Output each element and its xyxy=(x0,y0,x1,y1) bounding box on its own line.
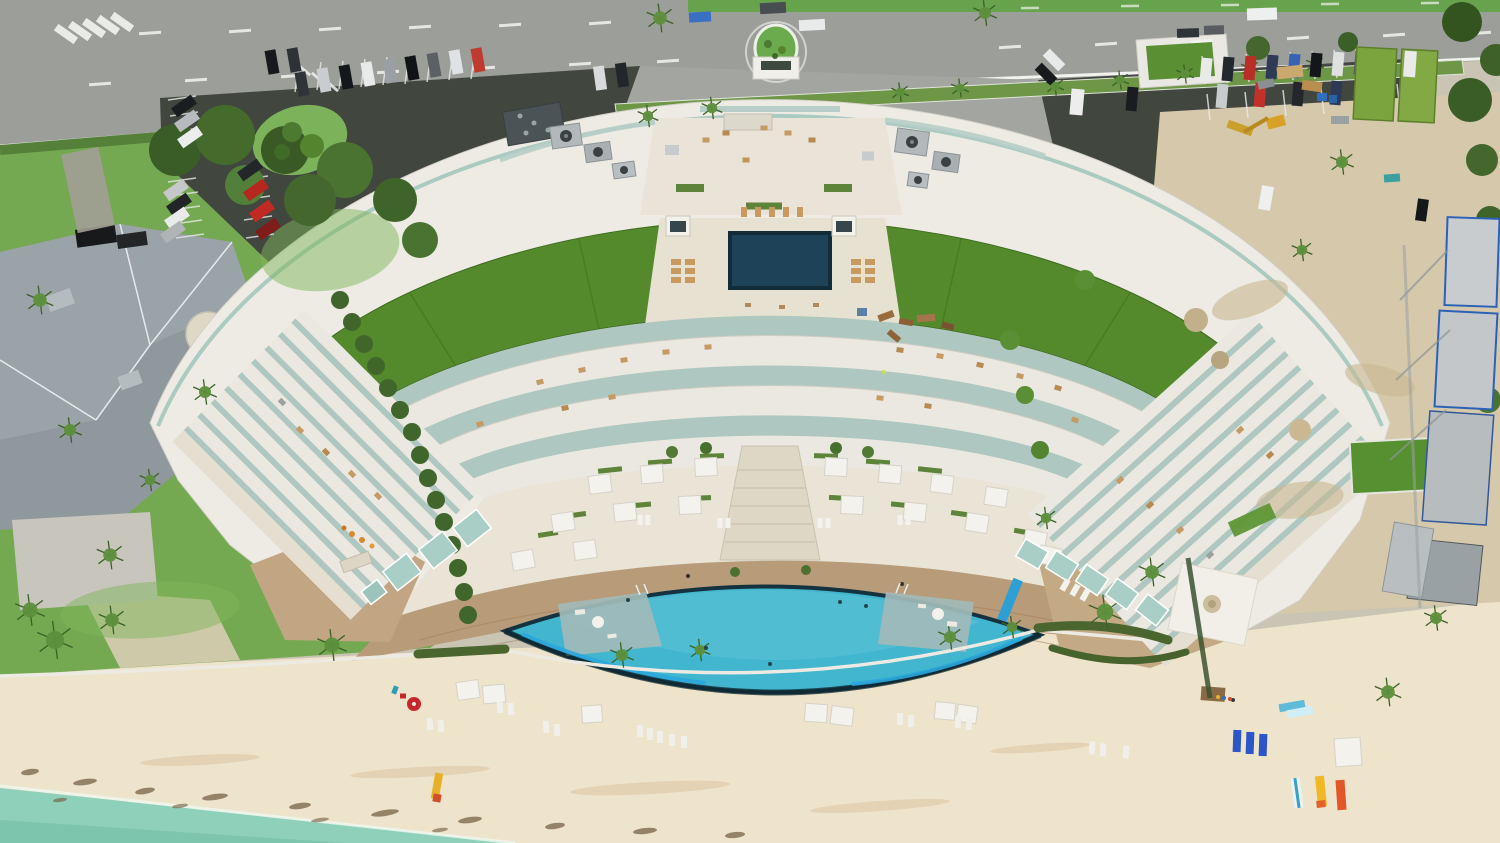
hedge xyxy=(676,184,704,192)
beach-lounger xyxy=(908,715,914,727)
pavilion-shade xyxy=(836,221,852,232)
fan xyxy=(910,140,914,144)
rooftop-lounger xyxy=(745,303,751,307)
scaffold-slab xyxy=(1422,411,1494,525)
tree xyxy=(830,442,842,454)
tree xyxy=(700,442,712,454)
fan xyxy=(564,134,568,138)
swimmer xyxy=(704,646,708,650)
lumber xyxy=(857,308,867,316)
vehicle xyxy=(689,11,711,22)
vent-dot xyxy=(546,128,551,133)
island-shrub xyxy=(772,53,778,59)
tree xyxy=(459,606,477,624)
lane-dash xyxy=(1221,4,1239,7)
lounger xyxy=(818,518,823,528)
parked-car xyxy=(1199,58,1212,83)
beach-lounger xyxy=(554,724,561,736)
porta-unit xyxy=(1329,95,1337,103)
rooftop-lounger xyxy=(797,207,803,217)
parked-car xyxy=(1331,52,1344,77)
tree xyxy=(1442,2,1482,42)
beach-lounger xyxy=(637,725,643,737)
beach-hedge xyxy=(418,649,505,654)
cabana xyxy=(878,464,901,484)
beach-lounger xyxy=(669,734,675,746)
rooftop-lounger xyxy=(779,305,785,309)
kayak xyxy=(1316,800,1326,808)
vehicle xyxy=(1204,25,1224,35)
shelf-lounger xyxy=(918,604,926,609)
tree xyxy=(355,335,373,353)
beach-lounger xyxy=(681,736,687,748)
rooftop-lounger xyxy=(671,277,681,283)
tree xyxy=(1075,270,1095,290)
tree xyxy=(1184,308,1208,332)
bar-item xyxy=(1228,697,1232,701)
beach-lounger xyxy=(657,731,663,743)
shelf-lounger xyxy=(947,621,957,627)
lounger xyxy=(638,515,643,525)
tree xyxy=(300,134,324,158)
parked-car xyxy=(1309,53,1322,78)
aerial-photo xyxy=(0,0,1500,843)
lounger xyxy=(646,515,651,525)
parked-car xyxy=(1215,84,1228,109)
cabana xyxy=(934,702,955,721)
tree xyxy=(1211,351,1229,369)
island-shrub xyxy=(778,46,786,54)
balcony-furniture xyxy=(743,158,750,163)
kayak xyxy=(432,793,441,802)
parked-car xyxy=(1221,57,1234,82)
lounger xyxy=(898,515,903,525)
vehicle xyxy=(1247,7,1277,20)
cabana xyxy=(511,549,536,571)
tree xyxy=(343,313,361,331)
balcony-furniture xyxy=(809,138,816,143)
bar-item xyxy=(1222,696,1226,700)
cabana xyxy=(930,474,954,495)
green-container xyxy=(1398,49,1438,123)
rooftop-lounger xyxy=(851,259,861,265)
parked-car xyxy=(1265,55,1278,80)
cabana xyxy=(456,680,480,701)
tree xyxy=(1031,441,1049,459)
cabana xyxy=(984,486,1009,507)
tree xyxy=(1000,330,1020,350)
cabana xyxy=(573,540,597,561)
worker xyxy=(882,370,886,374)
tree xyxy=(1466,144,1498,176)
beach-lounger xyxy=(1100,743,1107,756)
tree xyxy=(666,446,678,458)
tree xyxy=(391,401,409,419)
fan xyxy=(620,166,628,174)
flowers xyxy=(349,531,355,537)
beach-lounger xyxy=(647,728,653,740)
rooftop-lounger xyxy=(865,268,875,274)
pool-umbrella xyxy=(932,608,944,620)
rooftop-lounger xyxy=(769,207,775,217)
fan xyxy=(941,157,951,167)
tree xyxy=(419,469,437,487)
blue-lounger xyxy=(1233,730,1242,752)
roof-unit xyxy=(665,145,679,155)
cabana xyxy=(695,457,718,476)
tree xyxy=(274,144,290,160)
cabana xyxy=(640,464,663,484)
beach-lounger xyxy=(543,721,550,733)
parked-car xyxy=(1069,88,1084,115)
tree xyxy=(1289,419,1311,441)
parked-car xyxy=(1125,87,1138,112)
rooftop-lounger xyxy=(685,259,695,265)
rooftop-lounger xyxy=(851,277,861,283)
cabana xyxy=(551,511,576,532)
lounger xyxy=(906,515,911,525)
porta-unit xyxy=(1317,93,1327,101)
cabana xyxy=(825,457,848,476)
lane-dash xyxy=(1121,5,1139,8)
vehicle xyxy=(1177,28,1199,38)
cabana xyxy=(804,703,827,722)
flowers xyxy=(370,544,375,549)
hedge xyxy=(824,184,852,192)
balcony-furniture xyxy=(896,347,904,353)
rooftop-lounger xyxy=(813,303,819,307)
vehicle xyxy=(799,19,826,31)
cabana xyxy=(581,705,602,723)
beach-lounger xyxy=(437,720,444,732)
rooftop-lounger xyxy=(685,277,695,283)
swimmer xyxy=(838,600,842,604)
vent-dot xyxy=(524,131,529,136)
beach-lounger xyxy=(508,703,515,715)
pool-shallow-shelf xyxy=(878,592,974,652)
rooftop-lounger xyxy=(671,268,681,274)
beach-lounger xyxy=(1122,745,1129,758)
balcony-furniture xyxy=(785,131,792,136)
tree xyxy=(411,446,429,464)
lounger xyxy=(826,518,831,528)
bar-item xyxy=(1216,695,1220,699)
tree xyxy=(435,513,453,531)
lane-dash xyxy=(1421,2,1439,5)
tree xyxy=(1016,386,1034,404)
shelf-lounger xyxy=(575,609,585,615)
tree xyxy=(379,379,397,397)
trailer xyxy=(1403,51,1417,78)
lounger xyxy=(718,518,723,528)
tree xyxy=(427,491,445,509)
balcony-furniture xyxy=(703,138,710,143)
rooftop-lounger xyxy=(783,207,789,217)
fan xyxy=(593,147,603,157)
beach-chair xyxy=(400,694,406,699)
roof-unit xyxy=(862,152,874,161)
cabana xyxy=(679,495,702,514)
tree xyxy=(284,174,336,226)
tree xyxy=(331,291,349,309)
lane-dash xyxy=(1321,3,1339,6)
beach-lounger xyxy=(966,718,973,730)
balcony-furniture xyxy=(662,349,669,355)
beach-lounger xyxy=(426,718,433,730)
rooftop-lounger xyxy=(851,268,861,274)
balcony-furniture xyxy=(723,131,730,136)
aerial-photo-stage xyxy=(0,0,1500,843)
tree xyxy=(449,559,467,577)
tree xyxy=(403,423,421,441)
island-shrub xyxy=(764,40,772,48)
cabana xyxy=(588,474,612,495)
tree xyxy=(1448,78,1492,122)
red-umbrella xyxy=(412,702,416,706)
entry-courtyard xyxy=(640,118,902,215)
material-stack xyxy=(1331,116,1349,124)
tree xyxy=(402,222,438,258)
tree xyxy=(862,446,874,458)
fan xyxy=(914,176,922,184)
porte-cochere-opening xyxy=(761,61,791,70)
vent-dot xyxy=(518,114,523,119)
rooftop-lounger xyxy=(685,268,695,274)
tree xyxy=(1338,32,1358,52)
tree xyxy=(730,567,740,577)
balcony-furniture xyxy=(876,395,884,401)
rooftop-pool xyxy=(730,233,830,288)
person xyxy=(686,574,690,578)
rooftop-lounger xyxy=(865,277,875,283)
beach-lounger xyxy=(897,713,903,725)
vent-dot xyxy=(532,121,537,126)
swimmer xyxy=(768,662,772,666)
cabana xyxy=(1334,737,1362,767)
tree xyxy=(455,583,473,601)
pool-umbrella xyxy=(592,616,604,628)
rooftop-lounger xyxy=(741,207,747,217)
parked-car xyxy=(1243,56,1256,81)
lounger xyxy=(726,518,731,528)
green-container xyxy=(1353,47,1397,121)
lane-dash xyxy=(1021,7,1039,10)
tree xyxy=(282,122,302,142)
swimmer xyxy=(626,598,630,602)
scaffold-slab xyxy=(1435,311,1498,410)
scaffold-slab xyxy=(1444,217,1499,307)
tree xyxy=(373,178,417,222)
rooftop-lounger xyxy=(671,259,681,265)
rooftop-lounger xyxy=(865,259,875,265)
hedge xyxy=(746,203,782,210)
cabana xyxy=(965,512,990,533)
tree xyxy=(195,105,255,165)
balcony-furniture xyxy=(704,344,711,349)
blue-lounger xyxy=(1246,732,1255,754)
rooftop-lounger xyxy=(755,207,761,217)
cabana xyxy=(613,502,637,522)
vehicle xyxy=(760,2,787,14)
beach-lounger xyxy=(955,716,962,728)
tree xyxy=(801,565,811,575)
beach-lounger xyxy=(1089,741,1096,754)
blue-lounger xyxy=(1259,734,1268,756)
beach-bar xyxy=(1201,686,1226,702)
tree xyxy=(367,357,385,375)
balcony-furniture xyxy=(761,126,768,131)
cabana xyxy=(830,706,854,727)
pavilion-shade xyxy=(670,221,686,232)
flowers xyxy=(359,537,365,543)
median-strip xyxy=(688,0,1500,12)
cabana xyxy=(841,495,864,514)
person xyxy=(900,582,904,586)
flowers xyxy=(342,526,347,531)
beach-lounger xyxy=(497,701,504,713)
material-stack xyxy=(1384,173,1401,182)
swimmer xyxy=(864,604,868,608)
